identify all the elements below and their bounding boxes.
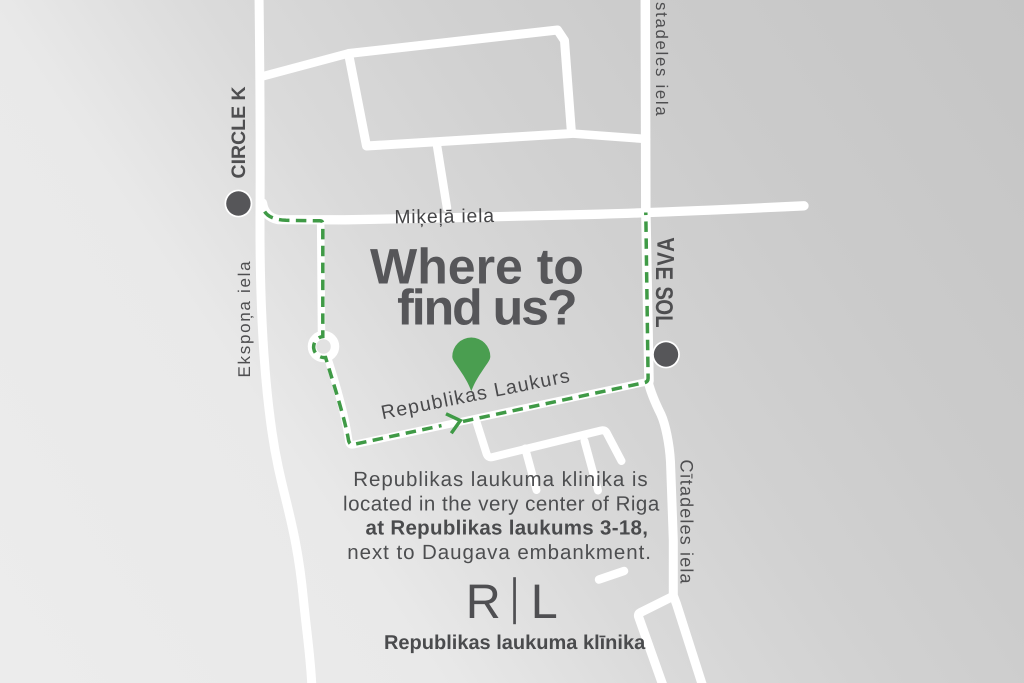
svg-text:L: L — [650, 315, 677, 328]
svg-text:Ekspoņa iela: Ekspoņa iela — [235, 260, 254, 378]
svg-text:Cītadeles iela: Cītadeles iela — [677, 460, 697, 585]
svg-text:stadeles iela: stadeles iela — [652, 2, 671, 117]
svg-text:V: V — [653, 252, 680, 266]
svg-text:E: E — [650, 267, 677, 281]
svg-text:R: R — [466, 575, 501, 629]
svg-text:L: L — [531, 575, 558, 629]
svg-text:next to Daugava embankment.: next to Daugava embankment. — [347, 541, 652, 564]
svg-text:S: S — [650, 286, 677, 300]
svg-text:at Republikas laukums 3-18,: at Republikas laukums 3-18, — [366, 517, 649, 540]
svg-text:A: A — [653, 237, 680, 252]
svg-text:located in the very center of: located in the very center of Riga — [343, 492, 660, 515]
svg-text:CIRCLE K: CIRCLE K — [228, 86, 250, 178]
svg-text:Republikas laukuma klinika is: Republikas laukuma klinika is — [353, 468, 648, 491]
svg-text:find us?: find us? — [397, 280, 575, 336]
svg-text:Republikas laukuma klīnika: Republikas laukuma klīnika — [384, 632, 646, 654]
svg-text:Miķeļā iela: Miķeļā iela — [394, 206, 495, 228]
svg-text:O: O — [650, 299, 677, 315]
